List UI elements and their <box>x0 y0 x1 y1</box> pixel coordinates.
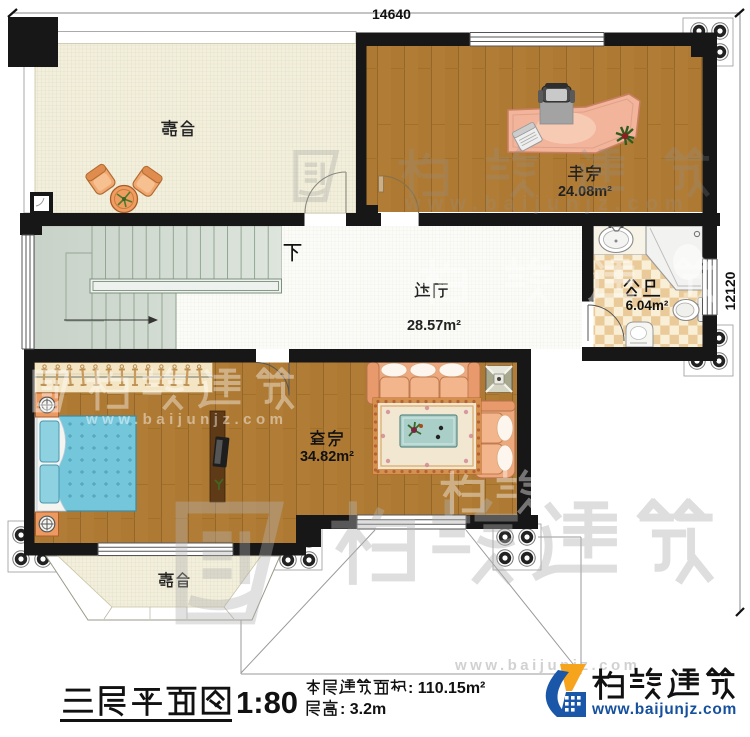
svg-text:www.baijunjz.com: www.baijunjz.com <box>591 701 737 718</box>
svg-text:6.04m²: 6.04m² <box>626 298 669 313</box>
svg-text:: 3.2m: : 3.2m <box>340 701 386 718</box>
svg-text:www.baijunjz.com: www.baijunjz.com <box>404 193 690 215</box>
svg-text:: 110.15m²: : 110.15m² <box>408 680 485 697</box>
svg-text:28.57m²: 28.57m² <box>407 318 461 334</box>
svg-text:34.82m²: 34.82m² <box>300 449 354 465</box>
svg-text:12120: 12120 <box>722 271 738 310</box>
svg-text:www.baijunjz.com: www.baijunjz.com <box>85 411 287 428</box>
svg-text:www.baijunjz.com: www.baijunjz.com <box>454 657 640 674</box>
svg-text:14640: 14640 <box>372 6 411 22</box>
svg-text:1:80: 1:80 <box>236 685 298 720</box>
